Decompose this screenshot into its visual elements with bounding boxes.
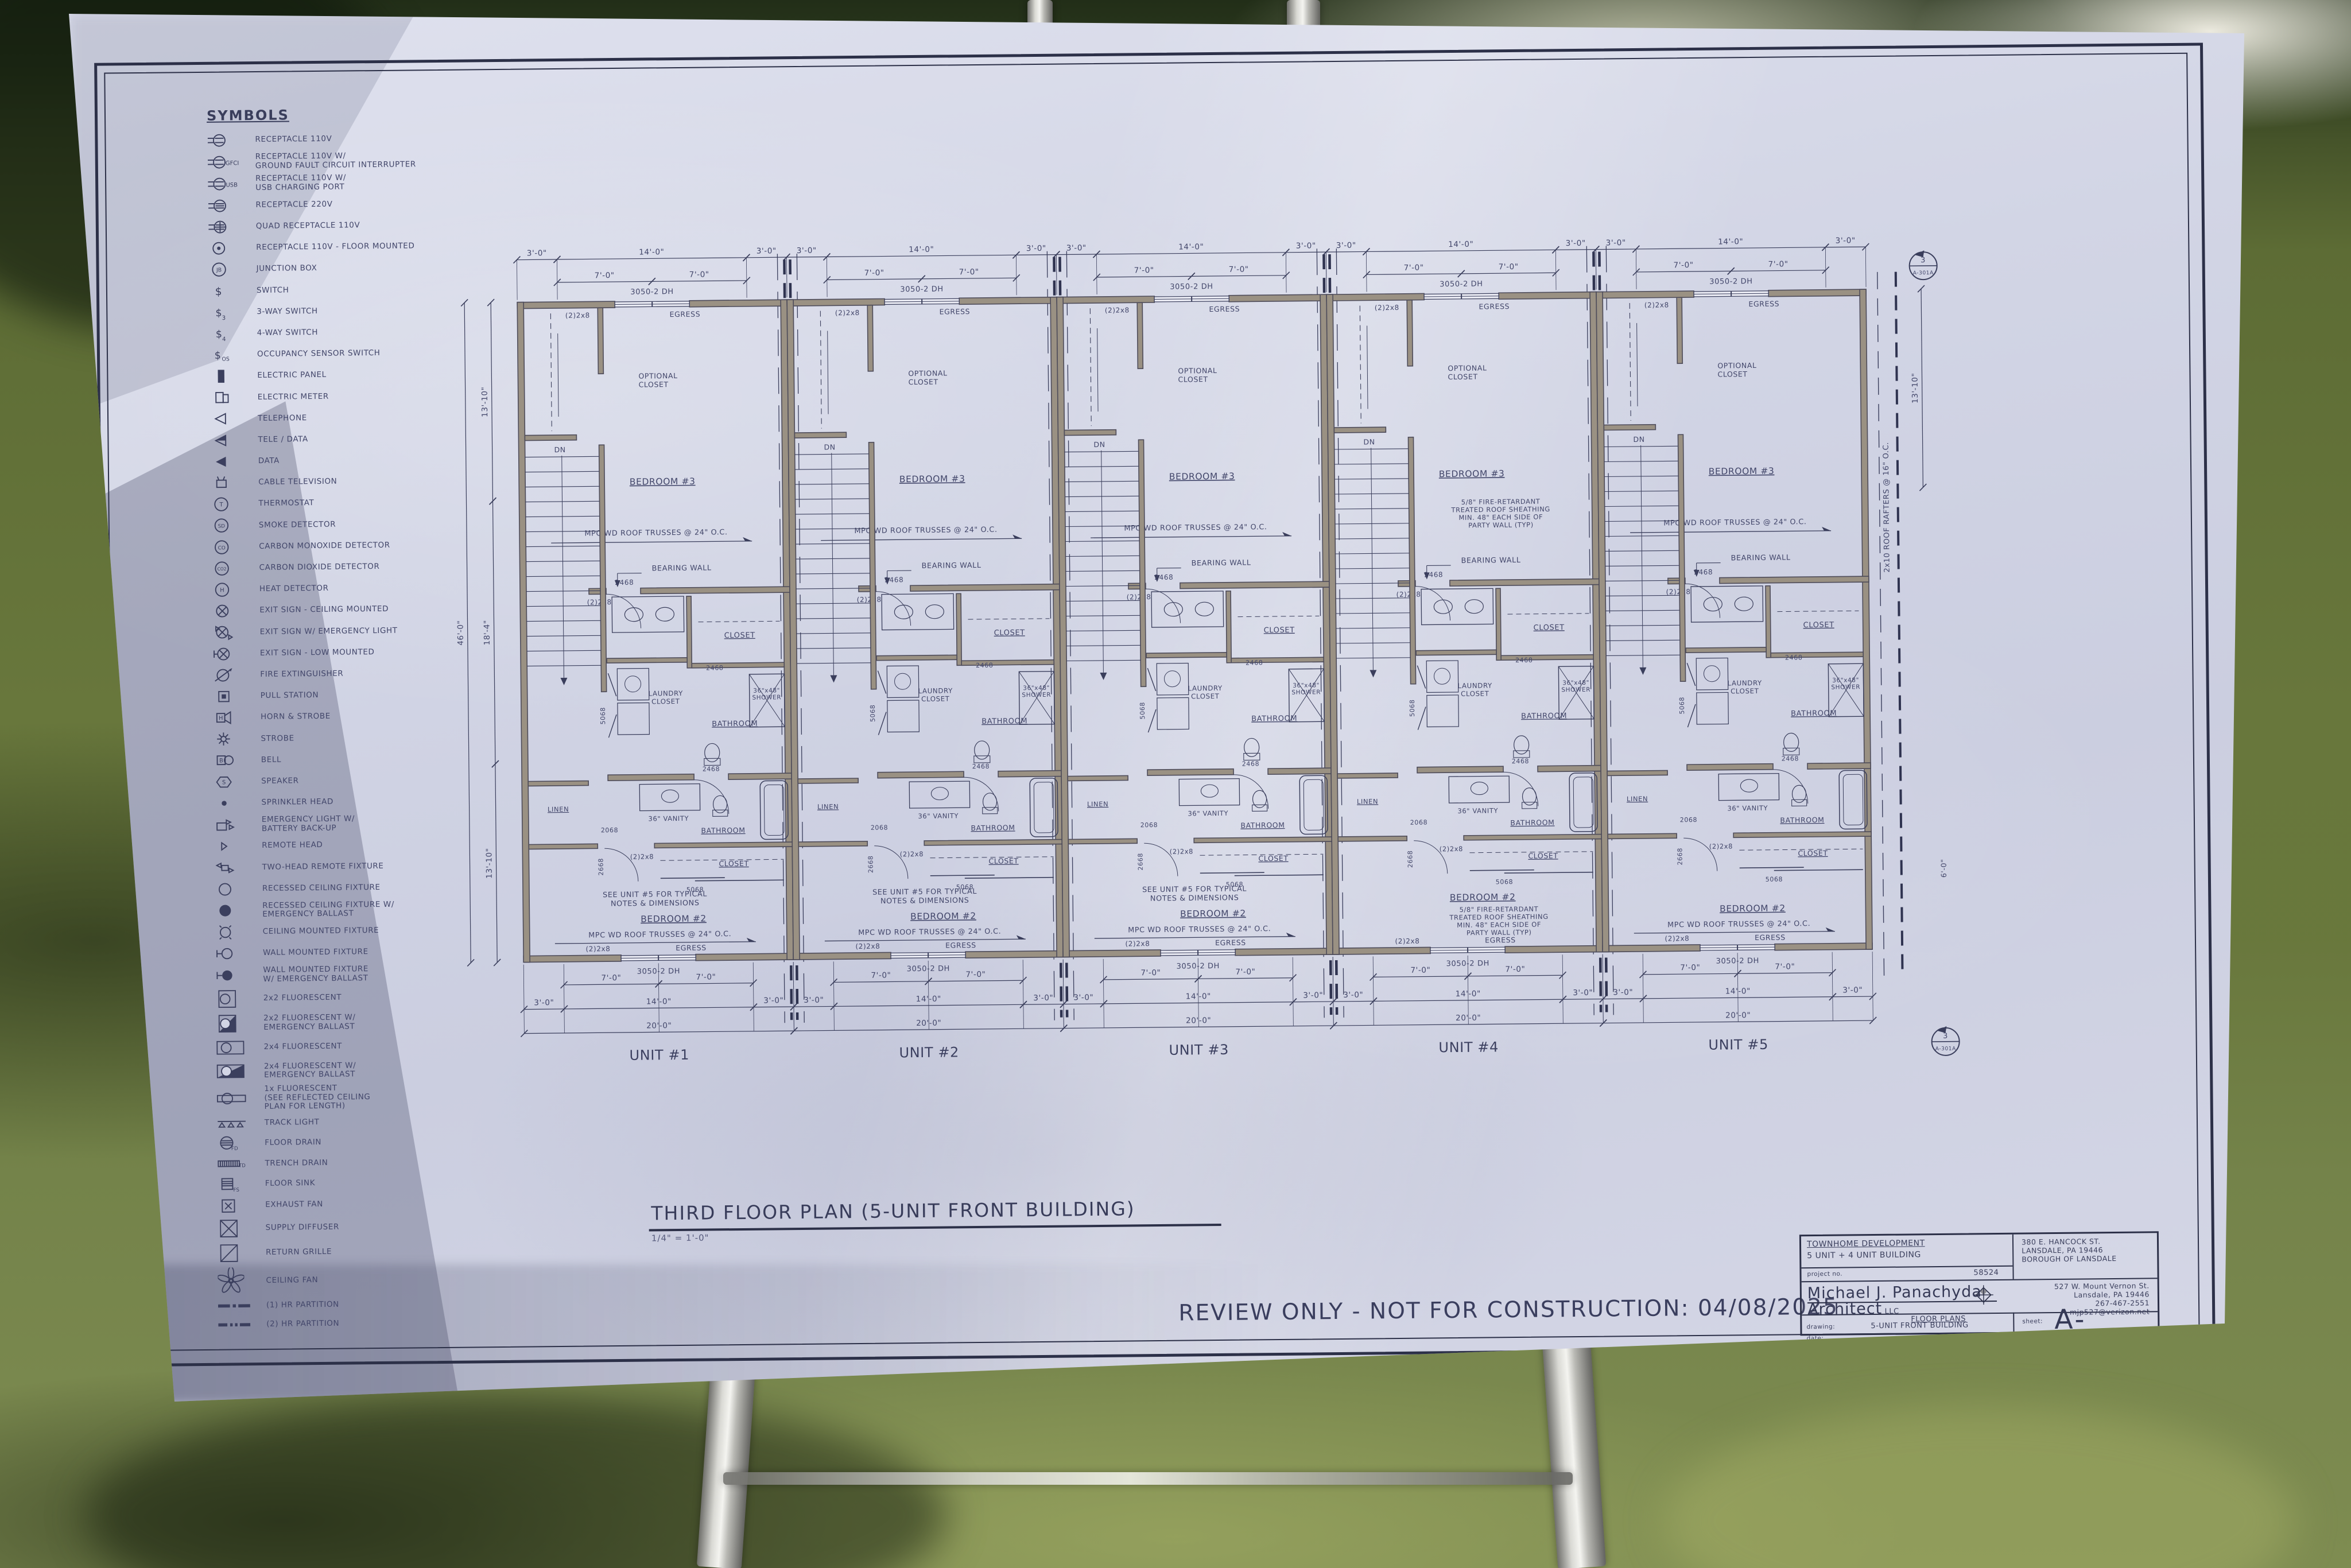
legend-item-label: SWITCH bbox=[257, 286, 289, 295]
legend-item-label: SUPPLY DIFFUSER bbox=[266, 1223, 339, 1233]
legend-item-label: RECESSED CEILING FIXTURE W/ EMERGENCY BA… bbox=[262, 901, 394, 919]
svg-text:2468: 2468 bbox=[972, 763, 990, 770]
svg-text:2468: 2468 bbox=[1154, 573, 1173, 581]
svg-text:2668: 2668 bbox=[1406, 851, 1414, 868]
two-head-remote-fixture-icon bbox=[214, 859, 262, 876]
legend-item-label: WALL MOUNTED FIXTURE bbox=[263, 948, 368, 958]
svg-text:14'-0": 14'-0" bbox=[916, 995, 941, 1004]
svg-text:LINEN: LINEN bbox=[1627, 795, 1648, 803]
svg-text:3'-0": 3'-0" bbox=[1066, 243, 1087, 253]
svg-text:SEE UNIT #5 FOR TYPICALNOTES &: SEE UNIT #5 FOR TYPICALNOTES & DIMENSION… bbox=[872, 887, 977, 906]
svg-text:UNIT #3: UNIT #3 bbox=[1169, 1042, 1229, 1058]
svg-text:2468: 2468 bbox=[1424, 570, 1443, 579]
sprinkler-head-icon bbox=[213, 794, 261, 812]
svg-text:2068: 2068 bbox=[1680, 816, 1698, 824]
svg-text:2668: 2668 bbox=[1136, 853, 1144, 871]
legend-item: CEILING FAN bbox=[218, 1265, 493, 1294]
svg-text:7'-0": 7'-0" bbox=[1229, 265, 1249, 274]
svg-text:2468: 2468 bbox=[1782, 755, 1799, 762]
svg-text:BEDROOM #3: BEDROOM #3 bbox=[1439, 468, 1505, 479]
svg-text:UNIT #4: UNIT #4 bbox=[1438, 1039, 1499, 1055]
svg-text:3'-0": 3'-0" bbox=[804, 996, 824, 1005]
svg-text:BEDROOM #2: BEDROOM #2 bbox=[641, 914, 707, 925]
svg-text:CLOSET: CLOSET bbox=[1264, 626, 1295, 635]
svg-text:3'-0": 3'-0" bbox=[1073, 993, 1093, 1002]
svg-text:BEARING WALL: BEARING WALL bbox=[922, 561, 981, 570]
svg-text:MPC WD ROOF TRUSSES @ 24" O.C.: MPC WD ROOF TRUSSES @ 24" O.C. bbox=[1128, 925, 1271, 934]
svg-text:MPC WD ROOF TRUSSES @ 24" O.C.: MPC WD ROOF TRUSSES @ 24" O.C. bbox=[1667, 919, 1810, 929]
svg-text:(2)2x8: (2)2x8 bbox=[1125, 940, 1150, 948]
thermostat-icon: T bbox=[210, 495, 258, 513]
plan-title: THIRD FLOOR PLAN (5-UNIT FRONT BUILDING) bbox=[649, 1197, 1221, 1232]
legend-item-label: (1) HR PARTITION bbox=[266, 1300, 339, 1310]
legend-item: (2) HR PARTITION bbox=[218, 1315, 494, 1333]
carbon-monoxide-detector-icon: CO bbox=[211, 538, 259, 556]
svg-text:LAUNDRYCLOSET: LAUNDRYCLOSET bbox=[1457, 681, 1492, 698]
svg-text:GFCI: GFCI bbox=[226, 160, 239, 166]
floor-plan-svg: 3050-2 DHEGRESS(2)2x8OPTIONALCLOSETBEDRO… bbox=[430, 208, 1966, 1175]
svg-text:3: 3 bbox=[1921, 256, 1926, 265]
fluorescent-2x4-em-icon bbox=[216, 1061, 264, 1081]
svg-text:2468: 2468 bbox=[1512, 758, 1530, 765]
client-building: 5 UNIT + 4 UNIT BUILDING bbox=[1807, 1250, 1921, 1260]
svg-text:(2)2x8: (2)2x8 bbox=[1396, 591, 1421, 599]
svg-text:3'-0": 3'-0" bbox=[756, 246, 777, 255]
receptacle-gfci-icon: GFCI bbox=[207, 153, 255, 171]
svg-text:18'-4": 18'-4" bbox=[482, 620, 491, 645]
svg-text:14'-0": 14'-0" bbox=[646, 997, 672, 1006]
legend-item: RECEPTACLE 110V bbox=[207, 129, 482, 149]
svg-text:UNIT #2: UNIT #2 bbox=[899, 1044, 959, 1061]
svg-text:7'-0": 7'-0" bbox=[1505, 965, 1525, 974]
svg-text:(2)2x8: (2)2x8 bbox=[1395, 937, 1419, 945]
svg-text:T: T bbox=[219, 502, 223, 509]
svg-text:36" VANITY: 36" VANITY bbox=[1727, 804, 1768, 813]
svg-text:7'-0": 7'-0" bbox=[1768, 259, 1789, 269]
svg-text:A-301A: A-301A bbox=[1935, 1046, 1956, 1052]
svg-text:EGRESS: EGRESS bbox=[676, 944, 707, 953]
svg-text:36"x48"SHOWER: 36"x48"SHOWER bbox=[1561, 680, 1590, 693]
svg-text:CLOSET: CLOSET bbox=[1528, 851, 1558, 860]
svg-text:(2)2x8: (2)2x8 bbox=[1665, 934, 1689, 942]
svg-text:$: $ bbox=[215, 286, 222, 298]
svg-text:CLOSET: CLOSET bbox=[1258, 854, 1288, 863]
partition-2hr-icon bbox=[218, 1319, 266, 1330]
svg-text:3'-0": 3'-0" bbox=[527, 249, 547, 258]
svg-text:UNIT #1: UNIT #1 bbox=[629, 1047, 689, 1064]
svg-text:BEDROOM #2: BEDROOM #2 bbox=[1720, 903, 1786, 914]
legend-item-label: DATA bbox=[258, 457, 280, 466]
svg-text:14'-0": 14'-0" bbox=[1725, 987, 1751, 996]
photo-of-blueprint: { "sheet": { "symbols_title": "SYMBOLS",… bbox=[0, 0, 2351, 1568]
fire-extinguisher-icon bbox=[212, 666, 260, 684]
svg-text:3'-0": 3'-0" bbox=[1026, 244, 1046, 253]
svg-text:14'-0": 14'-0" bbox=[1456, 989, 1481, 999]
svg-text:BEDROOM #2: BEDROOM #2 bbox=[1180, 909, 1246, 919]
svg-text:3'-0": 3'-0" bbox=[1566, 239, 1586, 248]
svg-text:BEDROOM #2: BEDROOM #2 bbox=[1450, 892, 1516, 903]
svg-text:JB: JB bbox=[216, 267, 222, 273]
legend-item-label: CEILING FAN bbox=[266, 1276, 318, 1285]
svg-text:$: $ bbox=[216, 329, 222, 340]
svg-text:BEDROOM #3: BEDROOM #3 bbox=[899, 473, 965, 484]
svg-text:3'-0": 3'-0" bbox=[1336, 241, 1356, 250]
exit-sign-low-icon bbox=[212, 645, 260, 662]
svg-text:(2)2x8: (2)2x8 bbox=[1375, 304, 1399, 312]
svg-text:3'-0": 3'-0" bbox=[797, 246, 817, 255]
svg-text:BEDROOM #3: BEDROOM #3 bbox=[1169, 471, 1235, 482]
svg-text:LAUNDRYCLOSET: LAUNDRYCLOSET bbox=[1727, 679, 1762, 696]
easel-crossbar bbox=[723, 1472, 1573, 1485]
svg-text:2668: 2668 bbox=[867, 856, 874, 874]
svg-text:LAUNDRYCLOSET: LAUNDRYCLOSET bbox=[1188, 684, 1223, 701]
svg-text:BEDROOM #2: BEDROOM #2 bbox=[910, 911, 976, 922]
switch-icon: $ bbox=[208, 282, 257, 300]
legend-item-label: EXIT SIGN W/ EMERGENCY LIGHT bbox=[260, 626, 398, 636]
legend-item-label: EMERGENCY LIGHT W/ BATTERY BACK-UP bbox=[262, 814, 355, 833]
svg-text:14'-0": 14'-0" bbox=[639, 247, 664, 257]
svg-text:3'-0": 3'-0" bbox=[1606, 238, 1626, 247]
legend-item-label: TRENCH DRAIN bbox=[265, 1158, 328, 1168]
svg-text:S: S bbox=[222, 779, 226, 786]
svg-text:2068: 2068 bbox=[871, 824, 889, 832]
svg-text:36" VANITY: 36" VANITY bbox=[648, 814, 689, 823]
data-icon bbox=[210, 453, 258, 471]
legend-item-label: TELE / DATA bbox=[258, 435, 308, 444]
svg-text:MPC WD ROOF TRUSSES @ 24" O.C.: MPC WD ROOF TRUSSES @ 24" O.C. bbox=[584, 528, 727, 538]
svg-text:36"x48"SHOWER: 36"x48"SHOWER bbox=[1022, 685, 1051, 698]
svg-text:(2)2x8: (2)2x8 bbox=[857, 596, 882, 604]
svg-text:7'-0": 7'-0" bbox=[871, 971, 891, 980]
receptacle-220v-icon bbox=[207, 197, 255, 215]
svg-text:(2)2x8: (2)2x8 bbox=[1127, 593, 1151, 601]
svg-text:46'-0": 46'-0" bbox=[456, 620, 465, 645]
legend-item-label: CARBON DIOXIDE DETECTOR bbox=[259, 562, 380, 573]
svg-text:2668: 2668 bbox=[597, 858, 604, 876]
svg-text:BEARING WALL: BEARING WALL bbox=[1461, 556, 1520, 565]
svg-text:20'-0": 20'-0" bbox=[916, 1019, 941, 1028]
svg-text:2468: 2468 bbox=[884, 576, 903, 584]
legend-item: EXHAUST FAN bbox=[217, 1194, 492, 1214]
svg-text:7'-0": 7'-0" bbox=[1674, 261, 1694, 270]
legend-item: RETURN GRILLE bbox=[218, 1240, 493, 1264]
site-address: 380 E. HANCOCK ST. LANSDALE, PA 19446 BO… bbox=[2022, 1237, 2117, 1264]
svg-text:36"x48"SHOWER: 36"x48"SHOWER bbox=[752, 687, 781, 701]
svg-text:3050-2 DH: 3050-2 DH bbox=[1709, 277, 1753, 286]
svg-text:2468: 2468 bbox=[1515, 657, 1533, 664]
horn-strobe-icon: H bbox=[212, 709, 261, 727]
svg-text:DN: DN bbox=[554, 445, 565, 454]
svg-text:BATHROOM: BATHROOM bbox=[701, 826, 745, 835]
wall-mounted-fixture-em-icon bbox=[215, 967, 263, 984]
svg-text:3'-0": 3'-0" bbox=[1343, 991, 1363, 1000]
svg-text:7'-0": 7'-0" bbox=[959, 267, 979, 277]
svg-text:B: B bbox=[219, 758, 223, 764]
svg-text:TD: TD bbox=[238, 1163, 246, 1169]
legend-item-label: 1x FLUORESCENT (SEE REFLECTED CEILING PL… bbox=[264, 1084, 370, 1111]
svg-text:OPTIONALCLOSET: OPTIONALCLOSET bbox=[1448, 363, 1487, 381]
svg-text:BATHROOM: BATHROOM bbox=[1240, 821, 1285, 830]
svg-text:FD: FD bbox=[231, 1146, 238, 1152]
legend-item-label: HEAT DETECTOR bbox=[259, 584, 329, 594]
svg-text:7'-0": 7'-0" bbox=[696, 972, 716, 981]
project-label: project no. bbox=[1807, 1271, 1842, 1278]
svg-text:SEE UNIT #5 FOR TYPICALNOTES &: SEE UNIT #5 FOR TYPICALNOTES & DIMENSION… bbox=[1142, 885, 1247, 903]
svg-text:$: $ bbox=[215, 307, 222, 319]
svg-text:36" VANITY: 36" VANITY bbox=[918, 812, 959, 820]
svg-text:3050-2 DH: 3050-2 DH bbox=[630, 288, 674, 297]
svg-text:36" VANITY: 36" VANITY bbox=[1188, 809, 1228, 818]
svg-text:3050-2 DH: 3050-2 DH bbox=[1440, 280, 1483, 289]
svg-text:13'-10": 13'-10" bbox=[1910, 373, 1920, 404]
tele-data-icon bbox=[210, 432, 258, 449]
svg-text:MPC WD ROOF TRUSSES @ 24" O.C.: MPC WD ROOF TRUSSES @ 24" O.C. bbox=[1124, 523, 1267, 533]
svg-text:2468: 2468 bbox=[703, 765, 720, 773]
legend-item-label: RETURN GRILLE bbox=[266, 1248, 332, 1257]
svg-text:5068: 5068 bbox=[1678, 697, 1686, 715]
svg-text:2468: 2468 bbox=[615, 579, 634, 587]
speaker-icon: S bbox=[213, 773, 261, 791]
svg-text:7'-0": 7'-0" bbox=[1499, 262, 1519, 271]
svg-text:2068: 2068 bbox=[601, 826, 619, 834]
svg-text:20'-0": 20'-0" bbox=[1186, 1016, 1211, 1025]
strobe-icon bbox=[212, 730, 261, 748]
svg-text:5/8" FIRE-RETARDANTTREATED ROO: 5/8" FIRE-RETARDANTTREATED ROOF SHEATHIN… bbox=[1450, 497, 1550, 529]
legend-item: RECEPTACLE 220V bbox=[207, 195, 483, 215]
svg-text:14'-0": 14'-0" bbox=[1448, 240, 1473, 249]
legend-item-label: OCCUPANCY SENSOR SWITCH bbox=[257, 349, 381, 359]
svg-text:(2)2x8: (2)2x8 bbox=[855, 942, 880, 950]
svg-text:EGRESS: EGRESS bbox=[939, 307, 970, 316]
switch-3way-icon: $3 bbox=[208, 304, 257, 321]
svg-text:$: $ bbox=[215, 350, 221, 362]
receptacle-floor-icon bbox=[208, 239, 256, 257]
symbols-legend-title: SYMBOLS bbox=[207, 105, 482, 124]
svg-text:2468: 2468 bbox=[1242, 760, 1260, 767]
svg-text:5068: 5068 bbox=[599, 707, 607, 725]
svg-text:OS: OS bbox=[222, 356, 229, 362]
svg-text:5068: 5068 bbox=[1409, 699, 1416, 717]
legend-item-label: BELL bbox=[261, 755, 281, 764]
svg-text:13'-10": 13'-10" bbox=[484, 848, 494, 879]
svg-text:LINEN: LINEN bbox=[548, 805, 569, 813]
project-number: 58524 bbox=[1973, 1268, 1999, 1277]
drawing-name: 5-UNIT FRONT BUILDING bbox=[1871, 1321, 1968, 1330]
svg-text:DN: DN bbox=[824, 443, 835, 451]
telephone-icon bbox=[210, 410, 258, 428]
svg-text:EGRESS: EGRESS bbox=[1755, 933, 1786, 942]
ceiling-fan-icon bbox=[218, 1267, 266, 1294]
electric-meter-icon bbox=[210, 389, 258, 406]
svg-text:(2)2x8: (2)2x8 bbox=[1666, 588, 1691, 596]
svg-text:3'-0": 3'-0" bbox=[763, 996, 783, 1005]
svg-text:BEARING WALL: BEARING WALL bbox=[1731, 553, 1790, 562]
svg-text:LINEN: LINEN bbox=[1087, 800, 1108, 808]
legend-item-label: CARBON MONOXIDE DETECTOR bbox=[259, 541, 390, 552]
receptacle-110v-icon bbox=[207, 131, 255, 149]
svg-text:7'-0": 7'-0" bbox=[1140, 968, 1161, 977]
svg-text:20'-0": 20'-0" bbox=[1725, 1011, 1751, 1020]
svg-text:EGRESS: EGRESS bbox=[669, 310, 700, 319]
emergency-light-battery-icon bbox=[214, 816, 262, 833]
svg-text:FS: FS bbox=[233, 1187, 239, 1193]
legend-item-label: TWO-HEAD REMOTE FIXTURE bbox=[262, 862, 384, 872]
svg-text:MPC WD ROOF TRUSSES @ 24" O.C.: MPC WD ROOF TRUSSES @ 24" O.C. bbox=[1663, 518, 1806, 527]
svg-text:LAUNDRYCLOSET: LAUNDRYCLOSET bbox=[918, 686, 953, 703]
svg-text:3: 3 bbox=[1943, 1032, 1948, 1041]
svg-text:SEE UNIT #5 FOR TYPICALNOTES &: SEE UNIT #5 FOR TYPICALNOTES & DIMENSION… bbox=[603, 890, 708, 909]
legend-item-label: CABLE TELEVISION bbox=[258, 478, 337, 487]
receptacle-usb-icon: USB bbox=[207, 175, 255, 193]
legend-item-label: SPRINKLER HEAD bbox=[261, 798, 333, 808]
svg-text:2468: 2468 bbox=[1246, 659, 1263, 666]
carbon-dioxide-detector-icon: CO2 bbox=[211, 560, 259, 577]
svg-text:MPC WD ROOF TRUSSES @ 24" O.C.: MPC WD ROOF TRUSSES @ 24" O.C. bbox=[588, 930, 731, 940]
heat-detector-icon: H bbox=[211, 581, 259, 599]
svg-text:EGRESS: EGRESS bbox=[1748, 300, 1779, 309]
legend-item-label: TRACK LIGHT bbox=[265, 1118, 320, 1127]
architect-logo-icon bbox=[1974, 1285, 1993, 1305]
svg-text:BATHROOM: BATHROOM bbox=[971, 823, 1015, 832]
legend-item-label: SPEAKER bbox=[261, 777, 299, 786]
partition-1hr-icon bbox=[218, 1301, 266, 1311]
svg-text:EGRESS: EGRESS bbox=[1479, 302, 1510, 311]
svg-text:3: 3 bbox=[222, 315, 226, 321]
legend-item-label: 3-WAY SWITCH bbox=[257, 307, 318, 317]
recessed-ceiling-fixture-icon bbox=[214, 880, 262, 898]
svg-text:7'-0": 7'-0" bbox=[1134, 266, 1154, 275]
fluorescent-2x2-em-icon bbox=[215, 1013, 263, 1034]
svg-text:(2)2x8: (2)2x8 bbox=[585, 945, 610, 953]
svg-text:H: H bbox=[220, 587, 224, 593]
legend-item-label: 2x2 FLUORESCENT bbox=[263, 993, 342, 1003]
svg-text:(2)2x8: (2)2x8 bbox=[1644, 301, 1669, 309]
legend-item-label: JUNCTION BOX bbox=[257, 264, 317, 274]
legend-item-label: CEILING MOUNTED FIXTURE bbox=[263, 926, 379, 936]
floor-drain-icon: FD bbox=[216, 1135, 265, 1152]
legend-item-label: EXIT SIGN - CEILING MOUNTED bbox=[259, 605, 389, 615]
svg-text:5068: 5068 bbox=[1766, 876, 1783, 883]
fluorescent-2x2-icon bbox=[215, 988, 263, 1009]
svg-text:EGRESS: EGRESS bbox=[945, 941, 976, 950]
ceiling-mounted-fixture-icon bbox=[215, 923, 263, 941]
svg-text:CLOSET: CLOSET bbox=[1803, 621, 1834, 630]
svg-text:CLOSET: CLOSET bbox=[1534, 623, 1565, 632]
architect-title: Architect LLC bbox=[1807, 1300, 1899, 1319]
fluorescent-1x-icon bbox=[216, 1089, 264, 1108]
legend-item-label: FLOOR DRAIN bbox=[265, 1138, 321, 1147]
svg-text:14'-0": 14'-0" bbox=[1186, 992, 1211, 1001]
legend-item: (1) HR PARTITION bbox=[218, 1296, 494, 1314]
svg-text:2068: 2068 bbox=[1410, 818, 1428, 826]
svg-text:CLOSET: CLOSET bbox=[994, 628, 1025, 638]
svg-text:SD: SD bbox=[218, 524, 226, 530]
svg-text:3'-0": 3'-0" bbox=[1296, 241, 1316, 250]
junction-box-icon: JB bbox=[208, 261, 256, 278]
svg-text:BEDROOM #3: BEDROOM #3 bbox=[630, 476, 696, 487]
client-name: TOWNHOME DEVELOPMENT bbox=[1807, 1239, 1925, 1249]
smoke-detector-icon: SD bbox=[211, 517, 259, 534]
svg-text:CLOSET: CLOSET bbox=[1798, 849, 1828, 858]
plan-scale: 1/4" = 1'-0" bbox=[651, 1233, 709, 1244]
svg-text:5068: 5068 bbox=[1139, 702, 1146, 720]
svg-text:(2)2x8: (2)2x8 bbox=[630, 852, 654, 860]
svg-text:7'-0": 7'-0" bbox=[689, 270, 709, 279]
legend-item-label: SMOKE DETECTOR bbox=[259, 520, 336, 530]
svg-text:(2)2x8: (2)2x8 bbox=[900, 850, 924, 858]
svg-text:20'-0": 20'-0" bbox=[646, 1021, 672, 1030]
svg-text:(2)2x8: (2)2x8 bbox=[1709, 842, 1733, 850]
svg-text:5/8" FIRE-RETARDANTTREATED ROO: 5/8" FIRE-RETARDANTTREATED ROOF SHEATHIN… bbox=[1449, 905, 1549, 937]
switch-4way-icon: $4 bbox=[209, 325, 257, 343]
svg-text:7'-0": 7'-0" bbox=[595, 271, 615, 280]
legend-item-label: 2x2 FLUORESCENT W/ EMERGENCY BALLAST bbox=[263, 1014, 356, 1033]
svg-text:(2)2x8: (2)2x8 bbox=[835, 309, 860, 317]
legend-item-label: (2) HR PARTITION bbox=[266, 1319, 339, 1329]
svg-text:CO2: CO2 bbox=[218, 566, 227, 571]
svg-text:2468: 2468 bbox=[976, 662, 994, 669]
svg-text:EGRESS: EGRESS bbox=[1215, 938, 1246, 948]
fluorescent-2x4-icon bbox=[215, 1038, 263, 1058]
track-light-icon bbox=[216, 1117, 265, 1130]
svg-text:CO: CO bbox=[218, 545, 226, 551]
legend-item-label: FLOOR SINK bbox=[265, 1179, 315, 1188]
svg-text:OPTIONALCLOSET: OPTIONALCLOSET bbox=[1178, 366, 1217, 384]
svg-text:3050-2 DH: 3050-2 DH bbox=[900, 285, 944, 294]
svg-text:BEARING WALL: BEARING WALL bbox=[1192, 558, 1251, 568]
legend-item: SUPPLY DIFFUSER bbox=[217, 1216, 492, 1239]
svg-text:DN: DN bbox=[1093, 440, 1105, 449]
svg-text:MPC WD ROOF TRUSSES @ 24" O.C.: MPC WD ROOF TRUSSES @ 24" O.C. bbox=[858, 927, 1001, 937]
svg-text:LINEN: LINEN bbox=[817, 802, 839, 810]
svg-text:BATHROOM: BATHROOM bbox=[1780, 816, 1824, 825]
floor-sink-icon: FS bbox=[217, 1175, 265, 1193]
legend-item-label: WALL MOUNTED FIXTURE W/ EMERGENCY BALLAS… bbox=[263, 965, 368, 984]
legend-item-label: RECEPTACLE 110V W/ USB CHARGING PORT bbox=[255, 174, 346, 193]
legend-item-label: REMOTE HEAD bbox=[262, 841, 323, 851]
svg-text:DN: DN bbox=[1633, 435, 1644, 444]
svg-text:3050-2 DH: 3050-2 DH bbox=[1170, 282, 1213, 292]
legend-item-label: RECEPTACLE 220V bbox=[255, 200, 332, 210]
svg-text:(2)2x8: (2)2x8 bbox=[565, 311, 590, 319]
svg-text:3'-0": 3'-0" bbox=[1842, 985, 1863, 995]
legend-item-label: RECEPTACLE 110V W/ GROUND FAULT CIRCUIT … bbox=[255, 152, 416, 171]
svg-text:2068: 2068 bbox=[1140, 821, 1158, 829]
return-grille-icon bbox=[218, 1243, 266, 1264]
svg-text:36" VANITY: 36" VANITY bbox=[1457, 806, 1498, 815]
supply-diffuser-icon bbox=[217, 1218, 265, 1239]
svg-text:7'-0": 7'-0" bbox=[1775, 962, 1795, 971]
electric-panel-icon bbox=[209, 367, 257, 385]
svg-text:7'-0": 7'-0" bbox=[864, 269, 884, 278]
svg-text:H: H bbox=[219, 715, 223, 721]
svg-text:MPC WD ROOF TRUSSES @ 24" O.C.: MPC WD ROOF TRUSSES @ 24" O.C. bbox=[854, 526, 997, 535]
legend-item-label: 2x4 FLUORESCENT W/ EMERGENCY BALLAST bbox=[264, 1061, 356, 1080]
legend-item-label: 4-WAY SWITCH bbox=[257, 328, 319, 338]
svg-text:3'-0": 3'-0" bbox=[1836, 236, 1856, 245]
svg-text:USB: USB bbox=[226, 182, 238, 188]
svg-text:36"x48"SHOWER: 36"x48"SHOWER bbox=[1291, 682, 1321, 696]
legend-item-label: PULL STATION bbox=[261, 691, 319, 700]
pull-station-icon bbox=[212, 688, 261, 705]
svg-text:EGRESS: EGRESS bbox=[1485, 936, 1516, 945]
legend-item-label: THERMOSTAT bbox=[258, 499, 314, 509]
svg-text:14'-0": 14'-0" bbox=[1178, 242, 1204, 251]
svg-text:3'-0": 3'-0" bbox=[1573, 988, 1593, 998]
svg-text:3'-0": 3'-0" bbox=[1033, 993, 1053, 1003]
svg-text:7'-0": 7'-0" bbox=[601, 973, 621, 983]
svg-text:BATHROOM: BATHROOM bbox=[1510, 818, 1554, 827]
